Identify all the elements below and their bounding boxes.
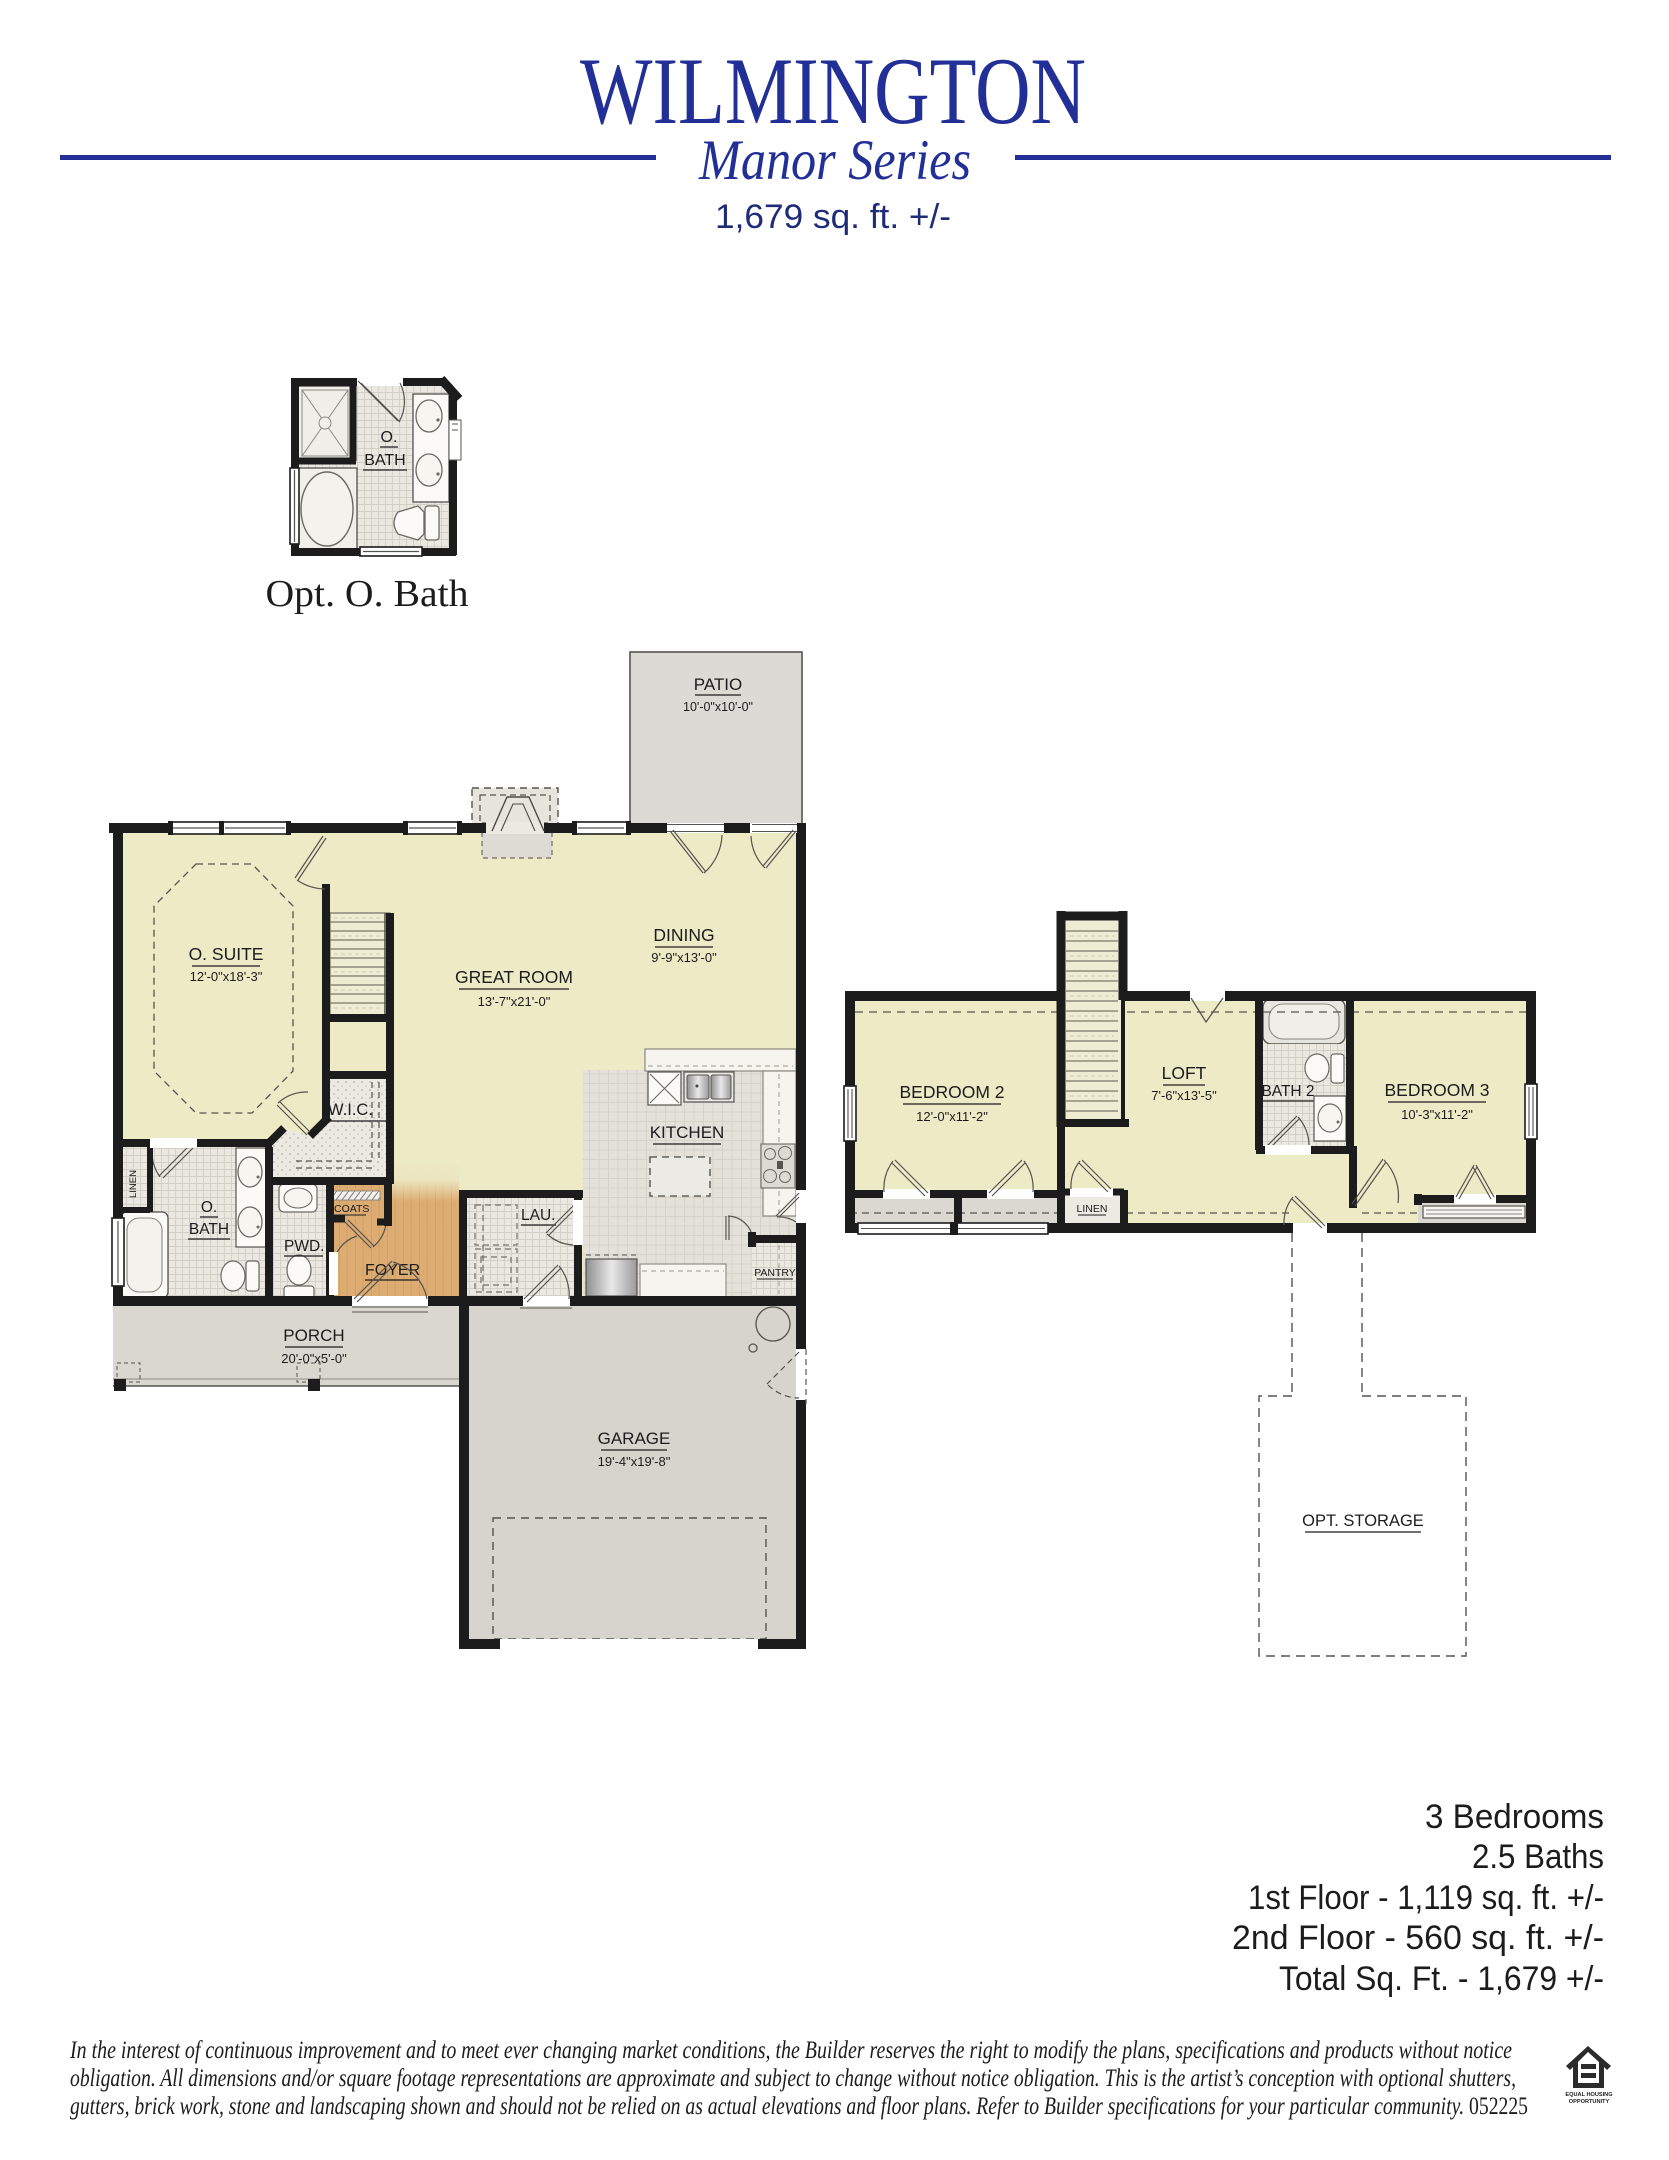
- svg-text:In the interest of continuous: In the interest of continuous improvemen…: [69, 2035, 1512, 2064]
- svg-text:LINEN: LINEN: [128, 1170, 139, 1198]
- svg-text:LAU.: LAU.: [521, 1207, 555, 1224]
- svg-text:7'-6"x13'-5": 7'-6"x13'-5": [1151, 1088, 1217, 1103]
- svg-text:FOYER: FOYER: [365, 1262, 420, 1279]
- svg-text:12'-0"x11'-2": 12'-0"x11'-2": [916, 1109, 988, 1124]
- svg-text:DINING: DINING: [653, 925, 714, 945]
- svg-text:3 Bedrooms: 3 Bedrooms: [1425, 1798, 1604, 1836]
- svg-text:2nd Floor - 560 sq. ft. +/-: 2nd Floor - 560 sq. ft. +/-: [1232, 1919, 1604, 1957]
- svg-text:BATH 2: BATH 2: [1261, 1083, 1314, 1100]
- svg-text:PWD.: PWD.: [284, 1238, 324, 1255]
- svg-text:COATS: COATS: [334, 1203, 369, 1215]
- svg-text:LINEN: LINEN: [1077, 1203, 1108, 1215]
- svg-text:12'-0"x18'-3": 12'-0"x18'-3": [190, 969, 263, 984]
- svg-text:obligation. All dimensions and: obligation. All dimensions and/or square…: [70, 2063, 1516, 2092]
- svg-text:PANTRY: PANTRY: [754, 1267, 796, 1279]
- svg-text:10'-3"x11'-2": 10'-3"x11'-2": [1401, 1107, 1473, 1122]
- svg-text:1st Floor - 1,119 sq. ft. +/-: 1st Floor - 1,119 sq. ft. +/-: [1248, 1879, 1604, 1917]
- svg-text:O. SUITE: O. SUITE: [189, 944, 264, 964]
- svg-text:BATH: BATH: [364, 452, 405, 469]
- svg-text:2.5 Baths: 2.5 Baths: [1472, 1838, 1604, 1876]
- svg-text:19'-4"x19'-8": 19'-4"x19'-8": [598, 1454, 671, 1469]
- svg-text:1,679 sq. ft. +/-: 1,679 sq. ft. +/-: [715, 198, 951, 236]
- svg-text:O.: O.: [201, 1199, 217, 1216]
- svg-text:BATH: BATH: [189, 1221, 229, 1238]
- svg-text:W.I.C.: W.I.C.: [328, 1101, 373, 1119]
- svg-text:GREAT ROOM: GREAT ROOM: [455, 967, 573, 987]
- svg-text:20'-0"x5'-0": 20'-0"x5'-0": [281, 1351, 347, 1366]
- svg-text:KITCHEN: KITCHEN: [650, 1123, 725, 1142]
- svg-text:O.: O.: [381, 429, 398, 446]
- svg-text:BEDROOM 2: BEDROOM 2: [899, 1082, 1004, 1102]
- svg-text:BEDROOM 3: BEDROOM 3: [1384, 1080, 1489, 1100]
- svg-text:EQUAL HOUSING: EQUAL HOUSING: [1565, 2092, 1612, 2098]
- svg-text:10'-0"x10'-0": 10'-0"x10'-0": [683, 700, 753, 714]
- svg-text:OPT. STORAGE: OPT. STORAGE: [1302, 1512, 1424, 1530]
- svg-text:13'-7"x21'-0": 13'-7"x21'-0": [478, 994, 551, 1009]
- svg-text:Manor Series: Manor Series: [698, 129, 971, 192]
- svg-text:9'-9"x13'-0": 9'-9"x13'-0": [651, 950, 717, 965]
- svg-text:Opt. O. Bath: Opt. O. Bath: [266, 573, 469, 615]
- svg-text:GARAGE: GARAGE: [598, 1429, 671, 1448]
- svg-text:gutters, brick work, stone and: gutters, brick work, stone and landscapi…: [70, 2091, 1528, 2120]
- svg-text:Total Sq. Ft. - 1,679 +/-: Total Sq. Ft. - 1,679 +/-: [1279, 1960, 1604, 1998]
- svg-text:PATIO: PATIO: [694, 675, 743, 694]
- svg-text:OPPORTUNITY: OPPORTUNITY: [1569, 2099, 1610, 2105]
- svg-text:PORCH: PORCH: [283, 1326, 344, 1345]
- svg-text:LOFT: LOFT: [1162, 1063, 1207, 1083]
